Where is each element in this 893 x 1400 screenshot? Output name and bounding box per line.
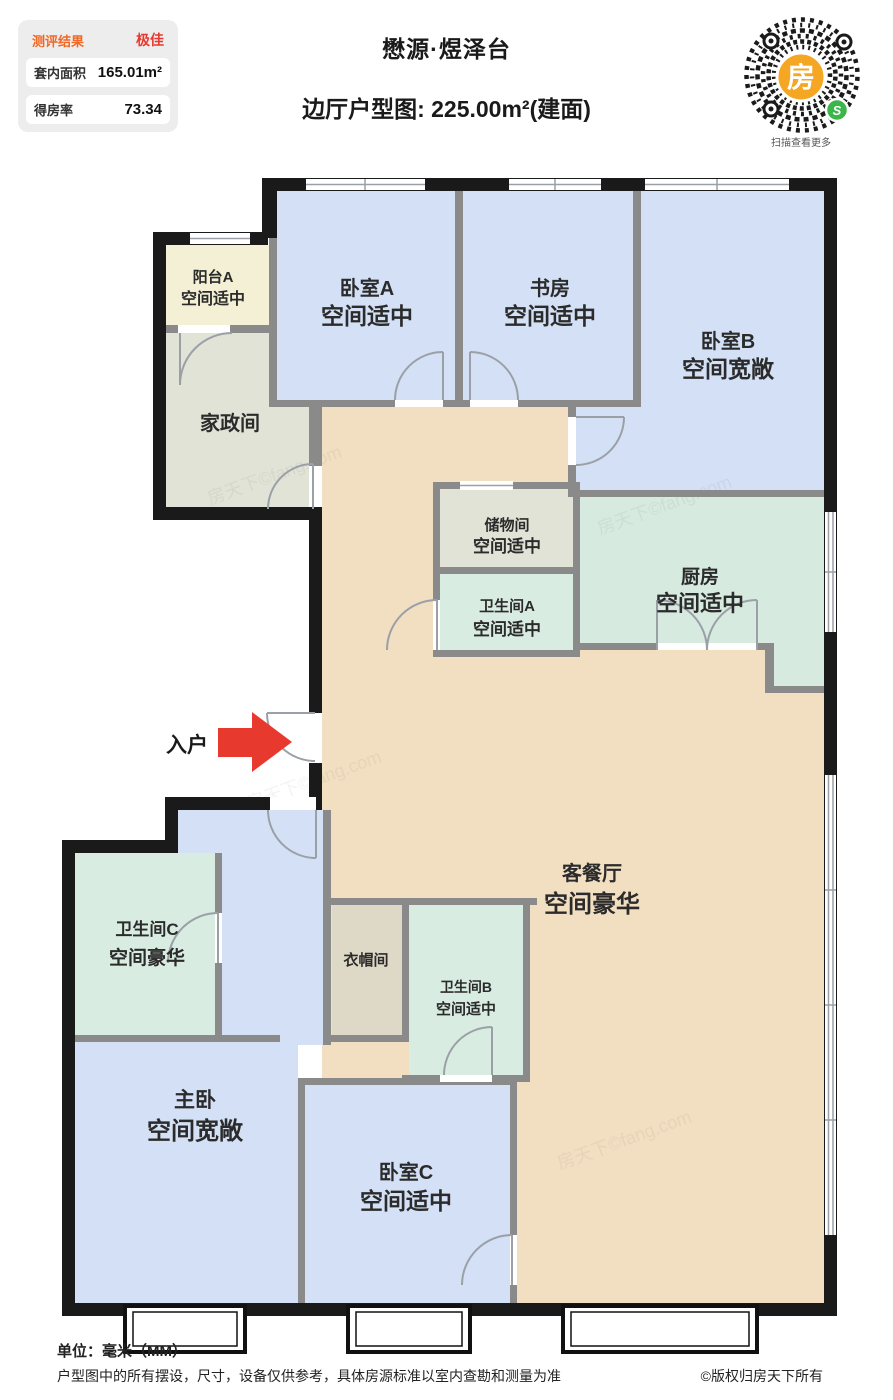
label-kitchen: 厨房 — [681, 565, 719, 588]
quality-bedroom-a: 空间适中 — [321, 303, 413, 329]
quality-balcony-a: 空间适中 — [181, 289, 245, 308]
room-cloakroom — [332, 905, 402, 1035]
quality-study: 空间适中 — [504, 303, 596, 329]
label-bath-a: 卫生间A — [479, 597, 535, 615]
label-living-dining: 客餐厅 — [561, 861, 622, 885]
bay-window-bedroom-c — [348, 1306, 470, 1352]
label-bath-c: 卫生间C — [115, 919, 178, 939]
label-storage: 储物间 — [484, 516, 529, 534]
window-top-bedroom-a — [306, 179, 425, 190]
quality-kitchen: 空间适中 — [656, 591, 744, 616]
copyright-note: ©版权归房天下所有 — [701, 1366, 823, 1386]
room-master-bedroom — [75, 1042, 298, 1303]
window-top-bedroom-b — [645, 179, 789, 190]
window-right-living — [825, 775, 836, 1235]
label-cloakroom: 衣帽间 — [343, 951, 388, 969]
quality-master-bedroom: 空间宽敞 — [147, 1117, 244, 1145]
bay-window-living — [563, 1306, 757, 1352]
window-storage-pass — [460, 481, 513, 490]
quality-bath-a: 空间适中 — [473, 619, 541, 639]
label-housekeeping: 家政间 — [200, 411, 260, 435]
window-right-kitchen — [825, 512, 836, 632]
label-bedroom-b: 卧室B — [701, 329, 755, 353]
window-balcony — [190, 233, 250, 244]
quality-living-dining: 空间豪华 — [544, 890, 640, 918]
quality-storage: 空间适中 — [473, 536, 541, 556]
entrance-label: 入户 — [166, 733, 208, 757]
label-bath-b: 卫生间B — [440, 979, 492, 995]
quality-bedroom-c: 空间适中 — [360, 1188, 452, 1214]
bay-windows — [125, 1306, 757, 1352]
floorplan-page: 测评结果 极佳 套内面积 165.01m² 得房率 73.34 懋源·煜泽台 边… — [0, 0, 893, 1400]
quality-bedroom-b: 空间宽敞 — [682, 356, 775, 382]
quality-bath-b: 空间适中 — [436, 1000, 496, 1018]
room-bath-c — [75, 853, 215, 1035]
disclaimer-note: 户型图中的所有摆设，尺寸，设备仅供参考，具体房源标准以室内查勘和测量为准 — [57, 1366, 561, 1386]
entrance-arrow-icon — [218, 712, 292, 772]
window-top-study — [509, 179, 601, 190]
unit-note: 单位：毫米（MM） — [57, 1340, 187, 1361]
label-master-bedroom: 主卧 — [174, 1089, 216, 1112]
label-bedroom-c: 卧室C — [379, 1160, 433, 1184]
label-bedroom-a: 卧室A — [340, 276, 394, 300]
label-study: 书房 — [530, 276, 570, 300]
floorplan-drawing: 房天下©fang.com 房天下©fang.com 房天下©fang.com 房… — [0, 0, 893, 1400]
label-balcony-a: 阳台A — [193, 268, 234, 286]
quality-bath-c: 空间豪华 — [109, 946, 185, 969]
